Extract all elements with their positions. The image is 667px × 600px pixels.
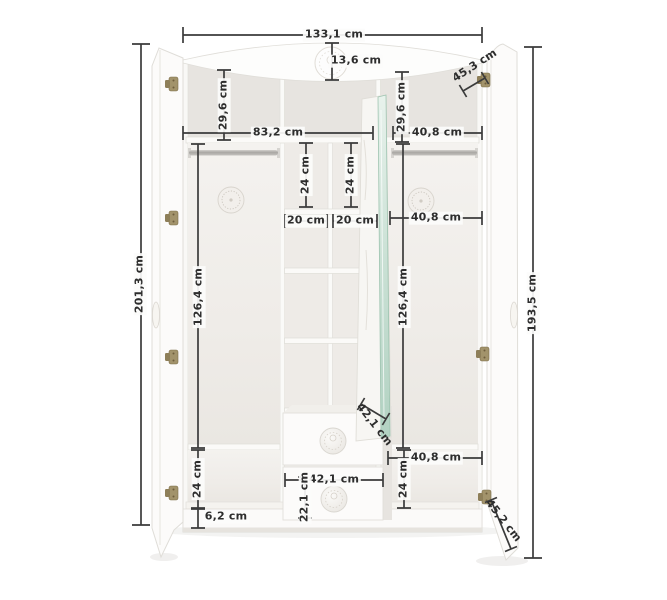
dim-drawer-front-height: 22,1 cm — [299, 470, 312, 524]
dim-right-bottom-shelf-width: 40,8 cm — [409, 452, 463, 465]
dim-overall-height: 201,3 cm — [134, 253, 147, 315]
dim-crown-height: 13,6 cm — [329, 55, 383, 68]
dim-overall-width: 133,1 cm — [303, 29, 365, 42]
dim-left-cubby-width: 20 cm — [285, 215, 327, 228]
dim-drawer-width: 42,1 cm — [307, 474, 361, 487]
wardrobe-illustration — [0, 0, 667, 600]
dim-right-bottom-height: 24 cm — [398, 458, 411, 500]
dim-right-cubby-height: 24 cm — [345, 154, 358, 196]
dim-left-interior-width: 83,2 cm — [251, 127, 305, 140]
wardrobe-dimension-diagram: 133,1 cm 13,6 cm 29,6 cm 29,6 cm 45,3 cm… — [0, 0, 667, 600]
dim-right-interior-width: 40,8 cm — [409, 212, 463, 225]
mirror-door — [356, 95, 391, 441]
dim-left-top-height: 29,6 cm — [218, 78, 231, 132]
left-door — [152, 48, 183, 557]
dim-left-cubby-height: 24 cm — [300, 154, 313, 196]
dim-right-top-height: 29,6 cm — [396, 80, 409, 134]
dim-plinth-height: 6,2 cm — [203, 511, 250, 524]
dim-left-bottom-height: 24 cm — [192, 458, 205, 500]
door-knob — [511, 302, 518, 328]
dim-right-top-shelf-width: 40,8 cm — [410, 127, 464, 140]
dim-left-hanging-height: 126,4 cm — [193, 266, 206, 328]
dim-right-cubby-width: 20 cm — [334, 215, 376, 228]
dim-right-hanging-height: 126,4 cm — [398, 266, 411, 328]
door-knob — [153, 302, 160, 328]
drawer-knob — [321, 486, 347, 512]
rosette-icon — [218, 187, 244, 213]
drawer-knob — [320, 428, 346, 454]
dim-door-height: 193,5 cm — [527, 272, 540, 334]
